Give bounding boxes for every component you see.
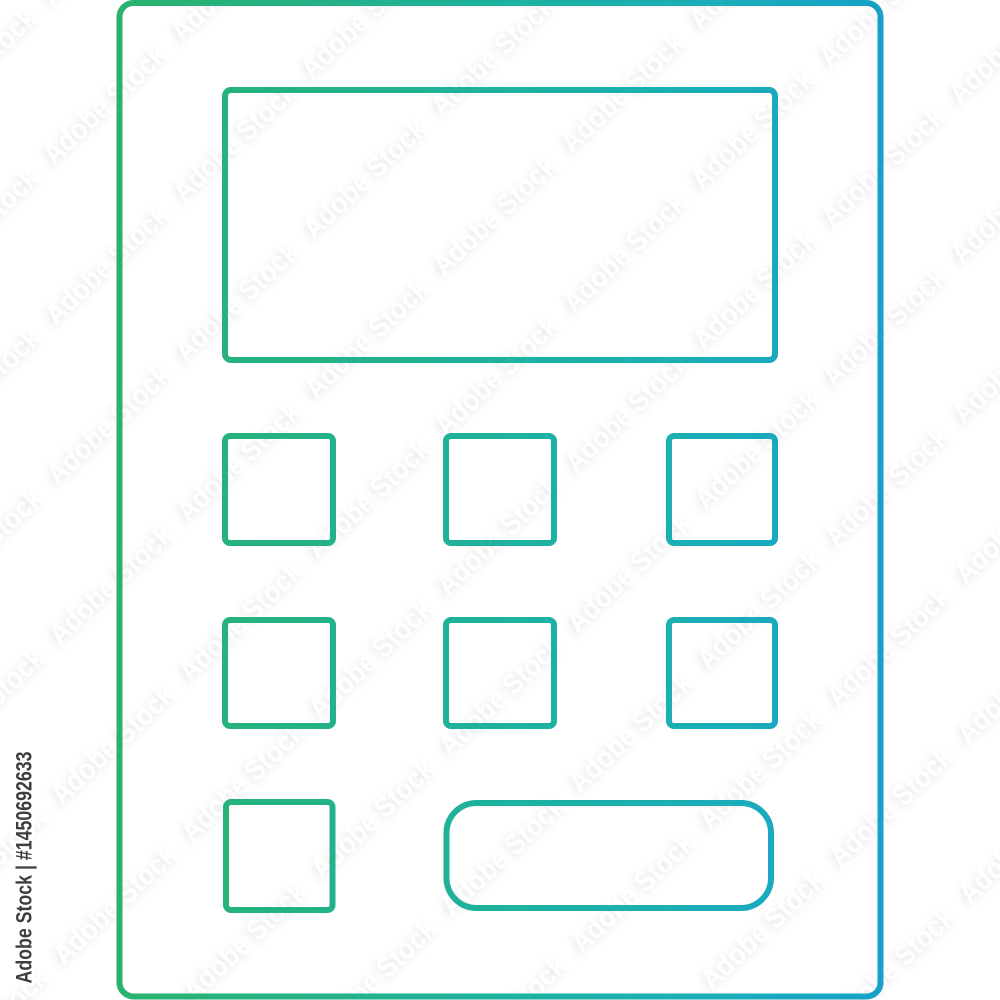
svg-text:Adobe Stock: Adobe Stock	[0, 162, 46, 295]
svg-text:Adobe Stock: Adobe Stock	[45, 679, 182, 812]
svg-text:Adobe Stock: Adobe Stock	[955, 938, 1000, 1000]
svg-text:Adobe Stock: Adobe Stock	[687, 224, 824, 357]
svg-text:Adobe Stock: Adobe Stock	[167, 76, 304, 209]
svg-text:Adobe Stock: Adobe Stock	[165, 0, 302, 48]
svg-text:Adobe Stock: Adobe Stock	[171, 396, 308, 529]
svg-text:Adobe Stock: Adobe Stock	[817, 261, 954, 394]
svg-text:Adobe Stock: Adobe Stock	[177, 876, 314, 1000]
svg-text:Adobe Stock: Adobe Stock	[0, 322, 48, 455]
svg-text:Adobe Stock: Adobe Stock	[47, 839, 184, 972]
svg-text:Adobe Stock: Adobe Stock	[825, 901, 962, 1000]
svg-text:Adobe Stock | #1450692633: Adobe Stock | #1450692633	[12, 752, 37, 984]
svg-text:Adobe Stock: Adobe Stock	[299, 273, 436, 406]
svg-text:Adobe Stock: Adobe Stock	[427, 150, 564, 283]
svg-text:Adobe Stock: Adobe Stock	[307, 913, 444, 1000]
svg-text:Adobe Stock: Adobe Stock	[433, 630, 570, 763]
svg-text:Adobe Stock: Adobe Stock	[425, 0, 562, 122]
svg-text:Adobe Stock: Adobe Stock	[295, 0, 432, 85]
svg-text:Adobe Stock: Adobe Stock	[563, 667, 700, 800]
svg-text:Adobe Stock: Adobe Stock	[557, 187, 694, 320]
svg-text:Adobe Stock: Adobe Stock	[943, 0, 1000, 110]
svg-text:Adobe Stock: Adobe Stock	[175, 716, 312, 849]
svg-text:Adobe Stock: Adobe Stock	[565, 827, 702, 960]
svg-text:Adobe Stock: Adobe Stock	[695, 864, 832, 997]
svg-text:Adobe Stock: Adobe Stock	[823, 741, 960, 874]
svg-text:Adobe Stock: Adobe Stock	[431, 470, 568, 603]
svg-text:Adobe Stock: Adobe Stock	[945, 138, 1000, 271]
svg-text:Adobe Stock: Adobe Stock	[41, 359, 178, 492]
svg-text:Adobe Stock: Adobe Stock	[43, 519, 180, 652]
svg-text:Adobe Stock: Adobe Stock	[429, 310, 566, 443]
svg-text:Adobe Stock: Adobe Stock	[0, 2, 44, 135]
svg-text:Adobe Stock: Adobe Stock	[951, 618, 1000, 751]
svg-text:Adobe Stock: Adobe Stock	[953, 778, 1000, 911]
svg-text:Adobe Stock: Adobe Stock	[821, 581, 958, 714]
svg-text:Adobe Stock: Adobe Stock	[947, 298, 1000, 431]
svg-text:Adobe Stock: Adobe Stock	[819, 421, 956, 554]
svg-text:Adobe Stock: Adobe Stock	[39, 199, 176, 332]
svg-text:Adobe Stock: Adobe Stock	[303, 593, 440, 726]
svg-text:Adobe Stock: Adobe Stock	[169, 236, 306, 369]
svg-text:Adobe Stock: Adobe Stock	[949, 458, 1000, 591]
svg-text:Adobe Stock: Adobe Stock	[37, 39, 174, 172]
svg-text:Adobe Stock: Adobe Stock	[685, 64, 822, 197]
svg-text:Adobe Stock: Adobe Stock	[559, 347, 696, 480]
svg-text:Adobe Stock: Adobe Stock	[437, 950, 574, 1000]
svg-text:Adobe Stock: Adobe Stock	[691, 544, 828, 677]
svg-text:Adobe Stock: Adobe Stock	[0, 482, 50, 615]
svg-text:Adobe Stock: Adobe Stock	[297, 113, 434, 246]
svg-text:Adobe Stock: Adobe Stock	[305, 753, 442, 886]
svg-text:Adobe Stock: Adobe Stock	[689, 384, 826, 517]
